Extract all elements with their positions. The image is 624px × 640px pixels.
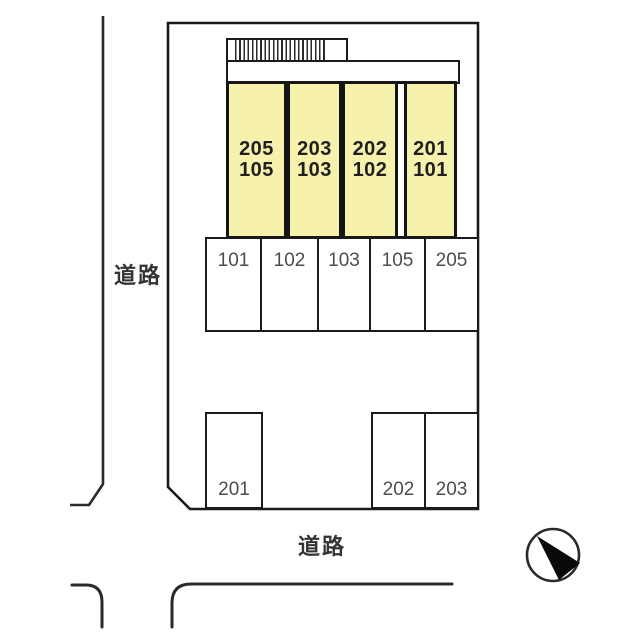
unit-upper-number: 205: [239, 139, 274, 160]
unit-lower-number: 105: [239, 160, 274, 181]
unit-lower-number: 103: [297, 160, 332, 181]
parking-space-205: 205: [424, 237, 479, 332]
intersection-corner-line: [72, 585, 102, 627]
parking-space-number: 103: [328, 250, 360, 271]
unit-201-101: 201 101: [404, 81, 457, 239]
parking-space-number: 102: [274, 250, 306, 271]
unit-203-103: 203 103: [287, 81, 342, 239]
parking-space-105: 105: [369, 237, 426, 332]
unit-202-102: 202 102: [342, 81, 398, 239]
unit-lower-number: 101: [413, 160, 448, 181]
road-label-bottom: 道路: [292, 529, 352, 561]
parking-space-number: 205: [436, 250, 468, 271]
unit-upper-number: 202: [353, 139, 388, 160]
site-plan: 205 105 203 103 202 102 201 101 101 102 …: [0, 0, 624, 640]
road-label-left: 道路: [108, 258, 168, 290]
parking-space-number: 201: [218, 479, 250, 501]
parking-space-102: 102: [260, 237, 319, 332]
unit-upper-number: 203: [297, 139, 332, 160]
stairs-hatch: [226, 38, 348, 62]
parking-space-202: 202: [371, 412, 426, 509]
left-road-line: [70, 16, 103, 505]
parking-space-number: 101: [218, 250, 250, 271]
parking-space-number: 203: [436, 479, 468, 501]
bottom-road-line: [172, 584, 452, 627]
parking-space-203: 203: [424, 412, 479, 509]
unit-205-105: 205 105: [226, 81, 287, 239]
stairs-stripes: [235, 40, 327, 60]
north-arrow-icon: [527, 529, 580, 581]
parking-space-201: 201: [205, 412, 263, 509]
unit-lower-number: 102: [353, 160, 388, 181]
parking-space-number: 105: [382, 250, 414, 271]
unit-upper-number: 201: [413, 139, 448, 160]
parking-space-number: 202: [383, 479, 415, 501]
parking-space-103: 103: [317, 237, 371, 332]
parking-space-101: 101: [205, 237, 262, 332]
